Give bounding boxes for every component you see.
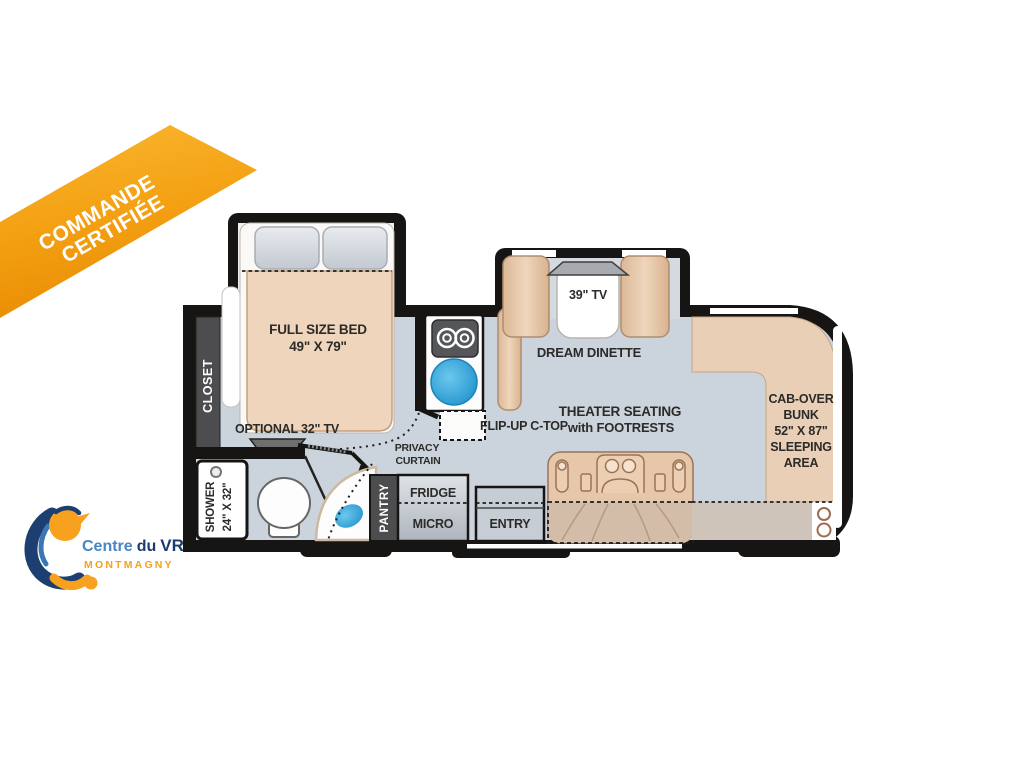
bunk-label-2: BUNK xyxy=(783,408,818,422)
entry-label: ENTRY xyxy=(490,517,532,531)
bed-size-label: 49" X 79" xyxy=(289,339,347,354)
flip-up-ctop xyxy=(440,411,485,440)
cupholder-right-icon xyxy=(675,462,683,470)
theater-label-2: with FOOTRESTS xyxy=(567,420,675,435)
bunk-label-3: 52" X 87" xyxy=(774,424,827,438)
certified-banner: COMMANDE CERTIFIÉE xyxy=(0,125,257,318)
dinette-label: DREAM DINETTE xyxy=(537,345,642,360)
kitchen-wall xyxy=(415,305,425,411)
logo-word-du: du xyxy=(137,538,157,555)
toilet xyxy=(258,478,310,528)
rv-floorplan-page: CLOSET FULL SIZE BED 49" X 79" OPTIONAL … xyxy=(0,0,1024,768)
dealer-logo: CentreduVR MONTMAGNY xyxy=(31,508,184,590)
windshield-strip xyxy=(833,326,842,528)
console-cupholder-1-icon xyxy=(606,460,619,473)
bunk-label-1: CAB-OVER xyxy=(768,392,833,406)
entry-box xyxy=(476,487,544,541)
slide-rail-mark xyxy=(467,544,682,549)
logo-word-centre: Centre xyxy=(82,538,133,555)
cab-top-window xyxy=(710,308,798,314)
bed-pillow-left xyxy=(255,227,319,269)
fridge-label: FRIDGE xyxy=(410,486,456,500)
logo-city: MONTMAGNY xyxy=(84,559,174,571)
floorplan-svg: CLOSET FULL SIZE BED 49" X 79" OPTIONAL … xyxy=(0,0,1024,768)
kitchen-sink xyxy=(431,359,477,405)
entry-area: ENTRY xyxy=(476,487,544,541)
theater-seating: THEATER SEATING with FOOTRESTS xyxy=(548,404,693,543)
bunk-label-5: AREA xyxy=(784,456,819,470)
logo-dot-orange xyxy=(85,577,98,590)
theater-label-1: THEATER SEATING xyxy=(559,404,682,419)
flip-up-label: FLIP-UP C-TOP xyxy=(480,419,568,433)
bath-wall xyxy=(183,447,305,459)
logo-swoosh-light xyxy=(41,526,48,564)
dinette-bench-right xyxy=(621,256,669,337)
bed-pillow-right xyxy=(323,227,387,269)
seat-console-left xyxy=(581,474,591,491)
dinette-bench-left xyxy=(503,256,549,337)
shower-drain-icon xyxy=(211,467,221,477)
bed-label: FULL SIZE BED xyxy=(269,322,367,337)
privacy-label-2: CURTAIN xyxy=(395,455,440,467)
bunk-label-4: SLEEPING xyxy=(770,440,832,454)
seat-console-right xyxy=(655,474,665,491)
logo-head-orange xyxy=(49,509,81,541)
bed-nightstand xyxy=(222,287,240,407)
cupholder-dash-2-icon xyxy=(818,524,831,537)
shower-size-label: 24" X 32" xyxy=(222,483,234,532)
optional-tv-label: OPTIONAL 32" TV xyxy=(235,422,340,436)
shower-label: SHOWER xyxy=(205,481,217,532)
console-cupholder-2-icon xyxy=(623,460,636,473)
privacy-label-1: PRIVACY xyxy=(395,442,440,454)
closet-label: CLOSET xyxy=(201,359,215,413)
fridge-micro-cabinet xyxy=(398,475,468,541)
cupholder-dash-1-icon xyxy=(818,508,830,520)
micro-label: MICRO xyxy=(413,517,454,531)
pantry-label: PANTRY xyxy=(379,484,391,533)
logo-wordmark: CentreduVR xyxy=(82,536,184,555)
cupholder-left-icon xyxy=(558,462,566,470)
theater-footrest xyxy=(548,502,693,543)
logo-word-vr: VR xyxy=(160,536,184,555)
dinette-tv-label: 39" TV xyxy=(569,288,608,302)
